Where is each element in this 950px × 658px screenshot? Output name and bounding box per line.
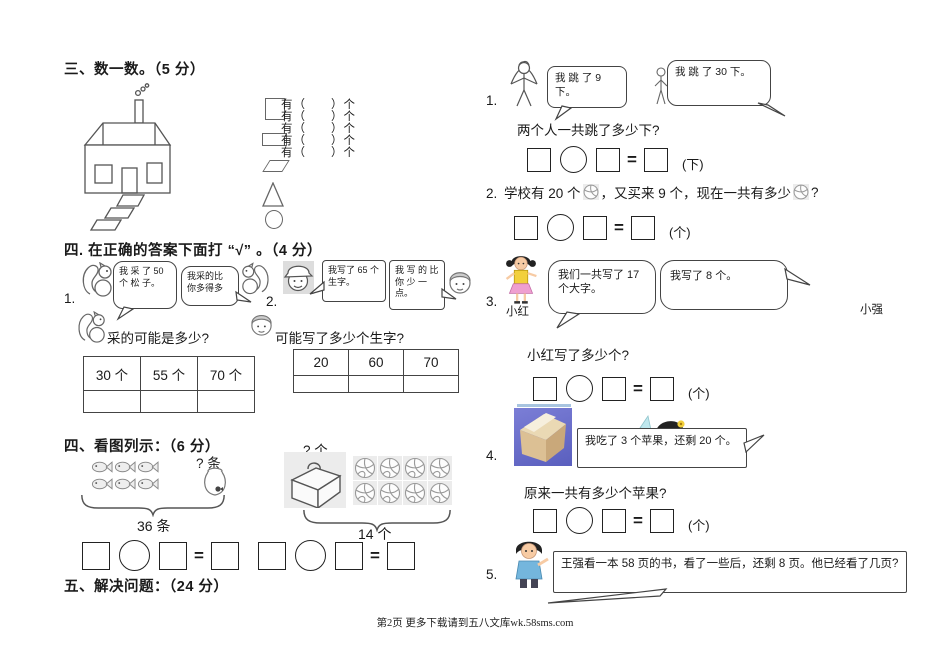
operator-circle[interactable]	[566, 375, 593, 402]
option-cell[interactable]: 30 个	[84, 357, 141, 391]
bubble-text: 我采的比 你多得多	[187, 271, 223, 293]
answer-box[interactable]	[602, 509, 626, 533]
bubble-tail-icon	[557, 312, 581, 328]
volleyball-icon	[428, 456, 452, 480]
pointing-boy-icon	[508, 537, 550, 591]
answer-cell[interactable]	[84, 391, 141, 413]
problem-number: 5.	[486, 567, 497, 582]
bubble-text: 我吃了 3 个苹果，还剩 20 个。	[585, 435, 737, 447]
equals-sign: =	[627, 150, 637, 170]
highlight-line	[517, 404, 571, 407]
squirrel-icon	[80, 262, 113, 298]
equation-row: = (个)	[533, 507, 710, 534]
problem-number: 2.	[486, 186, 497, 201]
unit-label: (个)	[688, 515, 710, 534]
answer-box[interactable]	[644, 148, 668, 172]
worksheet-page: 三、数一数。（5 分） 有（ ）个 有（ ）个 有（ ）个 有（ ）个 有（ ）…	[0, 0, 950, 658]
fish-icon	[90, 459, 113, 474]
speech-bubble: 我们一共写了 17 个大字。	[548, 260, 656, 314]
question-text: 可能写了多少个生字?	[275, 327, 404, 347]
operator-circle[interactable]	[560, 146, 587, 173]
underbrace-icon	[80, 493, 226, 517]
volleyball-icon	[428, 481, 452, 505]
bubble-text: 我写了 8 个。	[670, 270, 737, 282]
circle-shape	[265, 210, 283, 229]
squirrel-icon	[241, 262, 271, 296]
bubble-text: 我 跳 了 9 下。	[555, 72, 601, 98]
option-cell[interactable]: 55 个	[141, 357, 198, 391]
gift-box-icon	[284, 452, 346, 508]
unit-label: (个)	[688, 383, 710, 402]
girl-face-icon	[249, 310, 274, 339]
answer-cell[interactable]	[404, 376, 459, 393]
speech-bubble: 我写了 8 个。	[660, 260, 788, 310]
squirrel-icon	[76, 311, 106, 344]
jump-rope-girl-icon	[503, 56, 545, 114]
count-line[interactable]: 有（ ）个	[281, 144, 356, 160]
fish-icon	[136, 459, 159, 474]
bubble-tail-icon	[744, 435, 765, 453]
volleyball-icon	[403, 456, 427, 480]
options-table: 30 个 55 个 70 个	[83, 356, 255, 413]
option-cell[interactable]: 20	[294, 350, 349, 376]
speech-bubble: 我吃了 3 个苹果，还剩 20 个。	[577, 428, 747, 468]
bubble-text: 我们一共写了 17 个大字。	[558, 269, 639, 295]
unit-label: (个)	[669, 222, 691, 241]
girl-face-icon	[447, 267, 473, 297]
answer-cell[interactable]	[294, 376, 349, 393]
fish-icon	[113, 459, 136, 474]
text-segment: 学校有 20 个	[504, 182, 581, 202]
answer-cell[interactable]	[349, 376, 404, 393]
unit-label: (下)	[682, 154, 704, 173]
answer-box[interactable]	[533, 509, 557, 533]
equals-sign: =	[633, 379, 643, 399]
volleyball-icon	[353, 481, 377, 505]
volleyball-icon	[378, 456, 402, 480]
equals-sign: =	[614, 218, 624, 238]
problem-number: 1.	[64, 291, 75, 306]
equals-sign: =	[633, 511, 643, 531]
answer-box[interactable]	[527, 148, 551, 172]
answer-box[interactable]	[387, 542, 415, 570]
option-cell[interactable]: 70 个	[198, 357, 255, 391]
speech-bubble: 我 写 的 比 你 少 一 点。	[389, 260, 445, 310]
fish-icon	[136, 476, 159, 491]
bubble-tail-icon	[554, 106, 572, 119]
equation-row: = (个)	[533, 375, 710, 402]
volleyball-icon	[793, 184, 809, 200]
equals-sign: =	[370, 546, 380, 566]
option-cell[interactable]: 60	[349, 350, 404, 376]
speech-bubble: 我写了 65 个生字。	[322, 260, 386, 302]
answer-box[interactable]	[258, 542, 286, 570]
parallelogram-shape	[262, 160, 289, 172]
answer-box[interactable]	[159, 542, 187, 570]
wooden-box-photo	[514, 408, 572, 466]
bubble-text: 王强看一本 58 页的书，看了一些后，还剩 8 页。他已经看了几页?	[561, 558, 898, 570]
operator-circle[interactable]	[547, 214, 574, 241]
fish-icon	[113, 476, 136, 491]
question-text: 小红写了多少个?	[527, 344, 629, 364]
volleyball-icon	[353, 456, 377, 480]
bubble-text: 我写了 65 个生字。	[328, 265, 379, 287]
operator-circle[interactable]	[295, 540, 326, 571]
question-text: 两个人一共跳了多少下?	[517, 119, 660, 139]
options-table: 20 60 70	[293, 349, 459, 393]
answer-cell[interactable]	[198, 391, 255, 413]
answer-box[interactable]	[335, 542, 363, 570]
answer-box[interactable]	[650, 377, 674, 401]
answer-box[interactable]	[650, 509, 674, 533]
answer-box[interactable]	[82, 542, 110, 570]
page-footer: 第2页 更多下载请到五八文库wk.58sms.com	[0, 615, 950, 630]
operator-circle[interactable]	[119, 540, 150, 571]
question-text: 原来一共有多少个苹果?	[524, 482, 667, 502]
equation-row: = (下)	[527, 146, 704, 173]
volleyball-icon	[378, 481, 402, 505]
answer-box[interactable]	[596, 148, 620, 172]
equation-row: = (个)	[514, 214, 691, 241]
bubble-tail-icon	[548, 588, 668, 604]
fish-group	[90, 459, 159, 493]
bubble-tail-icon	[785, 265, 811, 287]
speech-bubble: 王强看一本 58 页的书，看了一些后，还剩 8 页。他已经看了几页?	[553, 551, 907, 593]
bubble-tail-icon	[758, 101, 786, 117]
question-text: 采的可能是多少?	[107, 327, 209, 347]
section5-heading: 五、解决问题：（24 分）	[64, 575, 228, 596]
problem-number: 4.	[486, 448, 497, 463]
xiaohong-girl-icon	[502, 252, 540, 304]
total-label: 36 条	[137, 516, 170, 536]
character-name: 小强	[860, 301, 883, 317]
bubble-tail-icon	[118, 307, 134, 319]
problem-number: 3.	[486, 294, 497, 309]
answer-box[interactable]	[211, 542, 239, 570]
volleyball-icon	[583, 184, 599, 200]
answer-box[interactable]	[583, 216, 607, 240]
equation-row: =	[82, 540, 239, 571]
bubble-text: 我 写 的 比 你 少 一 点。	[395, 265, 439, 298]
bubble-text: 我 跳 了 30 下。	[675, 66, 751, 78]
problem2-text: 学校有 20 个 ，又买来 9 个，现在一共有多少 ?	[504, 182, 819, 202]
speech-bubble: 我 采 了 50 个 松 子。	[113, 261, 177, 309]
option-cell[interactable]: 70	[404, 350, 459, 376]
equation-row: =	[258, 540, 415, 571]
operator-circle[interactable]	[566, 507, 593, 534]
text-segment: ，又买来 9 个，现在一共有多少	[601, 182, 792, 202]
fish-icon	[90, 476, 113, 491]
answer-box[interactable]	[602, 377, 626, 401]
bubble-tail-icon	[310, 282, 325, 295]
equals-sign: =	[194, 546, 204, 566]
answer-cell[interactable]	[141, 391, 198, 413]
answer-box[interactable]	[631, 216, 655, 240]
answer-box[interactable]	[514, 216, 538, 240]
house-drawing-icon	[80, 80, 175, 232]
problem-number: 1.	[486, 93, 497, 108]
section3-heading: 三、数一数。（5 分）	[64, 58, 205, 79]
volleyball-group	[353, 456, 452, 505]
text-segment: ?	[811, 185, 819, 200]
speech-bubble: 我采的比 你多得多	[181, 266, 239, 306]
bubble-text: 我 采 了 50 个 松 子。	[119, 266, 164, 288]
section4a-heading: 四. 在正确的答案下面打 “√” 。（4 分）	[64, 239, 322, 260]
character-name: 小红	[506, 303, 529, 319]
problem-number: 2.	[266, 294, 277, 309]
speech-bubble: 我 跳 了 9 下。	[547, 66, 627, 108]
answer-box[interactable]	[533, 377, 557, 401]
volleyball-icon	[403, 481, 427, 505]
triangle-shape	[262, 182, 284, 207]
speech-bubble: 我 跳 了 30 下。	[667, 60, 771, 106]
